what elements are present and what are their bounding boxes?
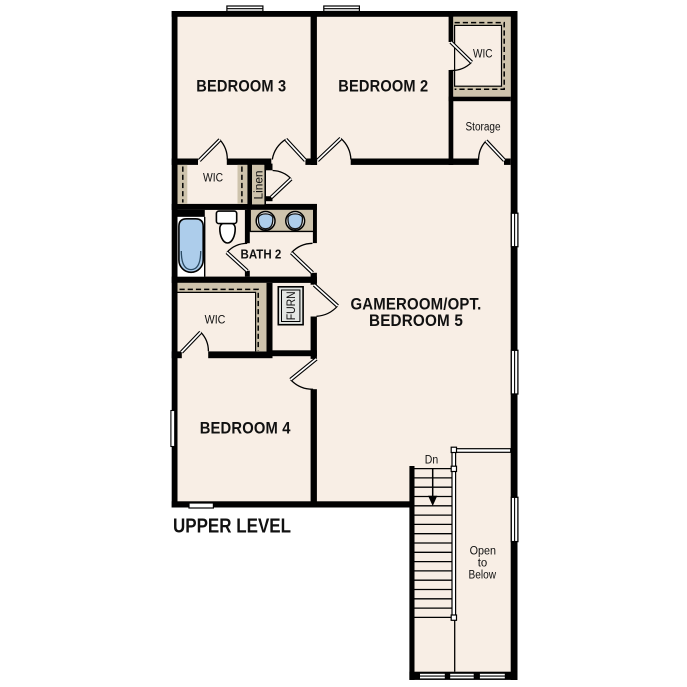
- svg-text:BATH 2: BATH 2: [241, 246, 282, 261]
- svg-text:Below: Below: [469, 570, 497, 582]
- svg-text:Dn: Dn: [425, 455, 438, 467]
- svg-text:to: to: [478, 558, 488, 570]
- svg-text:BEDROOM 3: BEDROOM 3: [196, 77, 286, 96]
- svg-text:BEDROOM 4: BEDROOM 4: [200, 419, 291, 438]
- svg-text:BEDROOM 2: BEDROOM 2: [338, 77, 428, 96]
- svg-text:UPPER LEVEL: UPPER LEVEL: [173, 515, 291, 538]
- svg-text:BEDROOM 5: BEDROOM 5: [369, 311, 463, 330]
- svg-text:WIC: WIC: [205, 314, 226, 326]
- svg-text:WIC: WIC: [203, 173, 223, 185]
- svg-text:Linen: Linen: [253, 171, 265, 200]
- svg-text:WIC: WIC: [473, 49, 493, 61]
- svg-text:Open: Open: [470, 545, 496, 557]
- svg-text:Storage: Storage: [466, 122, 501, 134]
- svg-text:FURN: FURN: [286, 291, 298, 320]
